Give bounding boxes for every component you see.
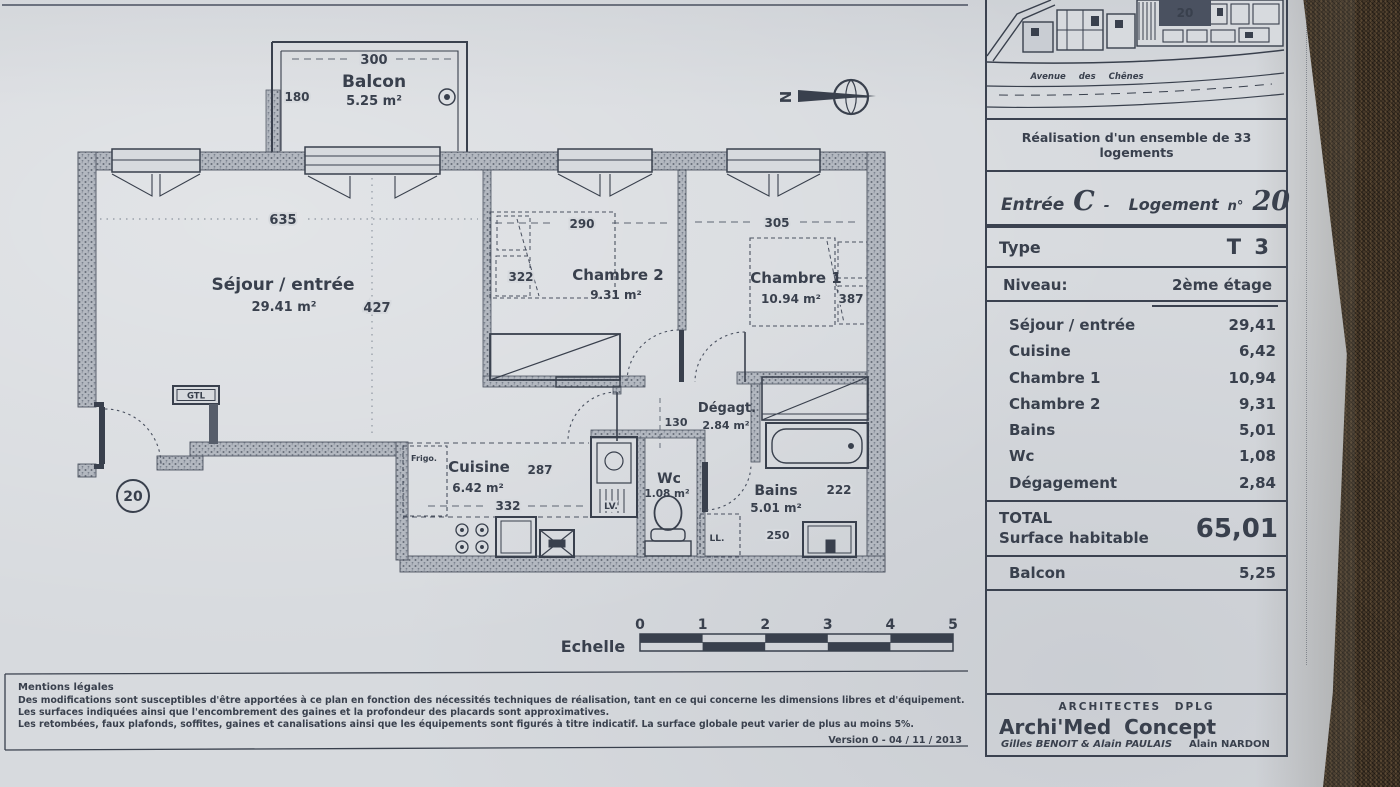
- chambre2-area: 9.31 m²: [590, 288, 642, 302]
- table-row: Dégagement 2,84: [987, 470, 1286, 496]
- scale-tick-4: 4: [886, 617, 896, 633]
- gtl-label: GTL: [187, 392, 206, 402]
- balcony-width-dim: 300: [360, 53, 387, 68]
- chambre1-height-dim: 387: [838, 292, 863, 306]
- version-label: Version 0 - 04 / 11 / 2013: [828, 735, 962, 746]
- site-unit-marker: 20: [1177, 6, 1194, 20]
- table-row: Séjour / entrée 29,41: [987, 312, 1286, 338]
- type-box: Type T 3: [987, 226, 1286, 268]
- chambre2-door: [627, 330, 684, 382]
- stove-burners: [456, 524, 488, 553]
- scale-tick-1: 1: [698, 617, 708, 633]
- table-row: Chambre 1 10,94: [987, 365, 1286, 391]
- type-value: T 3: [1227, 235, 1272, 259]
- balcony-label: Balcon: [342, 72, 406, 92]
- logement-number-label: n°: [1228, 199, 1244, 214]
- total-value: 65,01: [1196, 514, 1278, 544]
- room-area: 5,01: [1239, 420, 1276, 440]
- room-area: 1,08: [1239, 446, 1276, 466]
- legal-title: Mentions légales: [18, 681, 114, 693]
- room-name: Cuisine: [1009, 341, 1071, 361]
- site-map: 20 Avenue des Chênes: [987, 0, 1286, 120]
- wc-label: Wc: [657, 471, 681, 487]
- room-chambre2: [490, 212, 672, 387]
- degagt-label: Dégagt.: [698, 401, 756, 416]
- unit-number-label: 20: [123, 489, 143, 505]
- room-name: Bains: [1009, 420, 1055, 440]
- legal-line2: Les surfaces indiquées ainsi que l'encom…: [18, 707, 609, 718]
- chambre1-area: 10.94 m²: [761, 292, 821, 306]
- room-area: 10,94: [1229, 368, 1276, 388]
- legal-box: Mentions légales Des modifications sont …: [5, 671, 968, 750]
- entree-value: C: [1073, 186, 1095, 217]
- room-area: 29,41: [1229, 315, 1276, 335]
- sejour-window: [112, 149, 200, 196]
- chambre2-window: [558, 149, 652, 196]
- architects-heading: ARCHITECTES DPLG: [987, 701, 1286, 713]
- logement-number-value: 20: [1252, 186, 1290, 217]
- cuisine-height-dim: 332: [495, 499, 520, 513]
- scale-tick-0: 0: [635, 617, 645, 633]
- degagt-dim: 130: [665, 416, 688, 429]
- scale-tick-5: 5: [948, 617, 958, 633]
- architects-firm: Archi'Med Concept: [999, 715, 1216, 739]
- room-area: 6,42: [1239, 341, 1276, 361]
- balcony-depth-dim: 180: [284, 90, 309, 104]
- bains-door: [702, 462, 751, 512]
- chambre1-label: Chambre 1: [750, 269, 841, 287]
- cuisine-width-dim: 287: [527, 463, 552, 477]
- bains-width-dim: 222: [826, 483, 851, 497]
- cuisine-label: Cuisine: [448, 458, 510, 476]
- room-name: Chambre 1: [1009, 368, 1100, 388]
- room-name: Chambre 2: [1009, 394, 1100, 414]
- logement-label: Logement: [1129, 195, 1219, 214]
- bains-height-dim: 250: [767, 529, 790, 542]
- balcony-door: [305, 147, 440, 198]
- entree-label: Entrée: [1001, 195, 1064, 215]
- legal-line1: Des modifications sont susceptibles d'êt…: [18, 695, 965, 706]
- total-row: TOTAL Surface habitable 65,01: [987, 502, 1286, 557]
- scale-label: Echelle: [561, 637, 626, 656]
- table-row: Chambre 2 9,31: [987, 391, 1286, 417]
- room-name: Séjour / entrée: [1009, 315, 1135, 335]
- table-row: Cuisine 6,42: [987, 338, 1286, 364]
- north-arrow-icon: N: [777, 80, 876, 114]
- bains-label: Bains: [754, 483, 797, 499]
- type-label: Type: [999, 238, 1041, 257]
- north-letter: N: [777, 91, 795, 104]
- degagt-area: 2.84 m²: [702, 419, 749, 432]
- balcony-row: Balcon 5,25: [987, 557, 1286, 591]
- street-label: Avenue des Chênes: [1029, 71, 1143, 82]
- ll-label: LL.: [710, 534, 725, 544]
- floor-plan-drawing: 300 Balcon 5.25 m² 180: [0, 0, 985, 787]
- entree-separator: -: [1104, 198, 1110, 214]
- balcony-area: 5.25 m²: [346, 94, 402, 109]
- room-area: 9,31: [1239, 394, 1276, 414]
- scale-bar: Echelle 0 1 2 3 4 5: [561, 617, 958, 656]
- entry-door: [94, 402, 161, 469]
- legal-line3: Les retombées, faux plafonds, soffites, …: [18, 719, 914, 730]
- photo-scene: 300 Balcon 5.25 m² 180: [0, 0, 1400, 787]
- wc-area: 1.08 m²: [644, 488, 690, 500]
- table-row: Wc 1,08: [987, 443, 1286, 469]
- empty-section: [987, 591, 1286, 695]
- project-title: Réalisation d'un ensemble de 33 logement…: [987, 120, 1286, 172]
- sejour-area: 29.41 m²: [252, 300, 317, 315]
- entrance-line: Entrée C - Logement n° 20: [987, 172, 1286, 226]
- room-name: Wc: [1009, 446, 1034, 466]
- table-row: Bains 5,01: [987, 417, 1286, 443]
- chambre1-width-dim: 305: [764, 216, 789, 230]
- sejour-label: Séjour / entrée: [211, 275, 354, 295]
- sink-unit: [540, 530, 574, 557]
- frigo-label: Frigo.: [411, 454, 437, 463]
- level-value: 2ème étage: [1172, 276, 1272, 294]
- title-block-panel: 20 Avenue des Chênes Réalisation d'un en…: [985, 0, 1288, 757]
- level-value-underline: [1152, 305, 1278, 307]
- bains-area: 5.01 m²: [750, 501, 802, 515]
- sejour-height-dim: 427: [363, 301, 390, 316]
- chambre1-window: [727, 149, 820, 196]
- scale-tick-2: 2: [760, 617, 770, 633]
- scale-tick-3: 3: [823, 617, 833, 633]
- paper-perforation-line: [1306, 0, 1307, 665]
- total-label: TOTAL: [999, 509, 1052, 527]
- area-table: Séjour / entrée 29,41 Cuisine 6,42 Chamb…: [987, 302, 1286, 502]
- lv-label: LV.: [604, 502, 618, 512]
- total-sublabel: Surface habitable: [999, 529, 1149, 547]
- level-row: Niveau: 2ème étage: [987, 268, 1286, 302]
- room-name: Dégagement: [1009, 473, 1117, 493]
- chambre2-label: Chambre 2: [572, 266, 663, 284]
- chambre2-width-dim: 290: [569, 217, 594, 231]
- level-label: Niveau:: [1003, 276, 1067, 294]
- balcony-row-value: 5,25: [1239, 564, 1276, 582]
- balcony-row-label: Balcon: [1009, 564, 1066, 582]
- room-area: 2,84: [1239, 473, 1276, 493]
- room-cuisine: [403, 437, 637, 557]
- room-wc: [645, 496, 691, 556]
- architects-box: ARCHITECTES DPLG Archi'Med Concept Gille…: [987, 695, 1286, 757]
- architects-team2: Alain NARDON: [1189, 739, 1270, 750]
- sejour-width-dim: 635: [269, 213, 296, 228]
- cuisine-area: 6.42 m²: [452, 481, 504, 495]
- architects-team1: Gilles BENOIT & Alain PAULAIS: [1001, 739, 1172, 750]
- chambre2-height-dim: 322: [508, 270, 533, 284]
